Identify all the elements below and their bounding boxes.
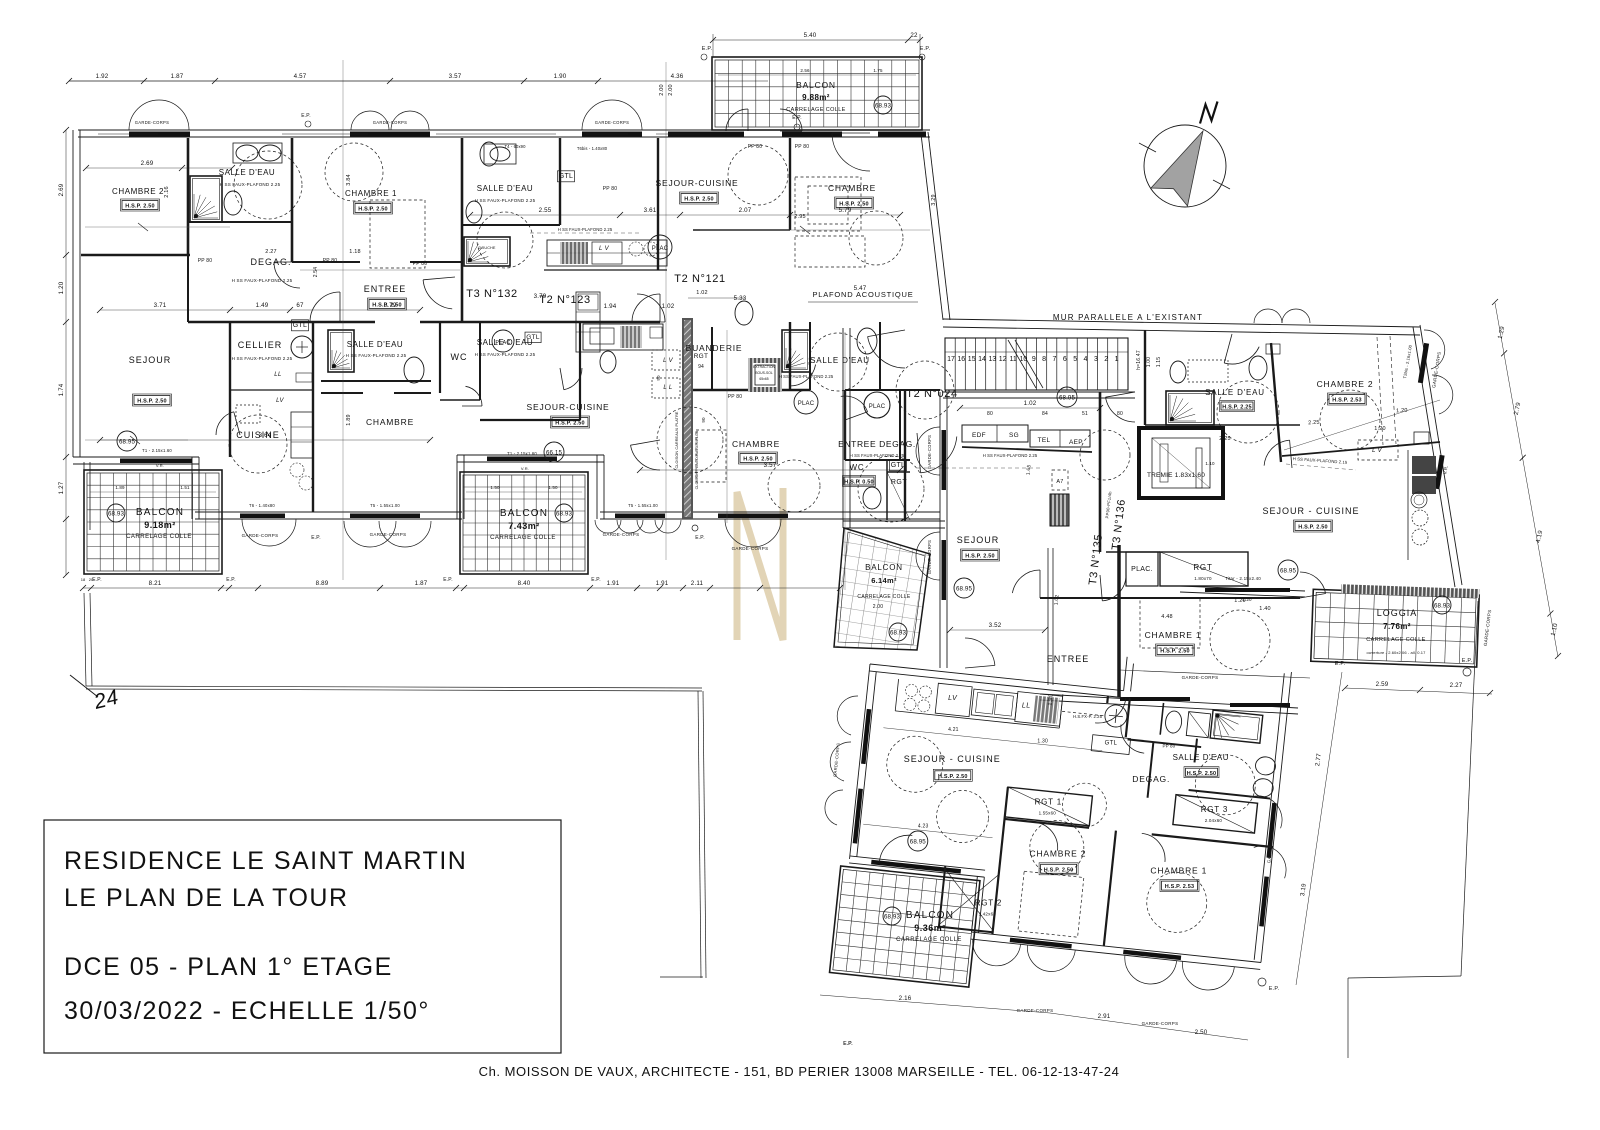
svg-text:2.00: 2.00	[659, 84, 665, 96]
svg-text:H.S.P. 2.50: H.S.P. 2.50	[137, 399, 167, 405]
svg-text:BALCON: BALCON	[906, 910, 954, 921]
svg-text:90: 90	[656, 375, 661, 381]
svg-text:7.43m²: 7.43m²	[508, 521, 540, 531]
svg-text:H.S.P. 2.50: H.S.P. 2.50	[1187, 771, 1217, 777]
svg-text:2.56: 2.56	[800, 68, 810, 73]
svg-text:H SS FAUX-PLAFOND 2.25: H SS FAUX-PLAFOND 2.25	[850, 453, 905, 458]
svg-text:22: 22	[910, 32, 918, 39]
svg-text:CARRELAGE COLLE: CARRELAGE COLLE	[857, 594, 910, 600]
svg-text:13: 13	[989, 356, 997, 363]
svg-text:SG: SG	[1009, 432, 1019, 439]
svg-text:PLAC: PLAC	[869, 404, 886, 410]
svg-text:DOUCHE: DOUCHE	[478, 246, 495, 250]
svg-text:MUR PARALLELE A L'EXISTANT: MUR PARALLELE A L'EXISTANT	[1053, 313, 1203, 322]
svg-text:T6 - 1.40x80: T6 - 1.40x80	[249, 503, 275, 508]
svg-text:6: 6	[1063, 356, 1067, 363]
svg-text:2.16: 2.16	[899, 995, 912, 1002]
svg-text:2.91: 2.91	[1098, 1013, 1111, 1020]
svg-text:2.59: 2.59	[1376, 681, 1389, 688]
svg-text:H.S.P. 2.25: H.S.P. 2.25	[1222, 405, 1252, 411]
svg-text:E.P.: E.P.	[702, 46, 713, 52]
svg-text:EDF: EDF	[972, 432, 986, 439]
svg-text:DCE 05 - PLAN 1° ETAGE: DCE 05 - PLAN 1° ETAGE	[64, 953, 393, 981]
svg-text:5.40: 5.40	[804, 32, 817, 39]
svg-text:H.S.P. 2.50: H.S.P. 2.50	[1044, 867, 1074, 873]
svg-text:SALLE D'EAU: SALLE D'EAU	[347, 340, 403, 349]
svg-text:3.84: 3.84	[346, 174, 352, 186]
svg-text:T2 N°121: T2 N°121	[674, 273, 725, 285]
svg-text:51: 51	[1082, 411, 1088, 417]
svg-text:1.89: 1.89	[346, 414, 352, 426]
svg-text:H.S.P. 2.50: H.S.P. 2.50	[1160, 649, 1190, 655]
svg-text:11: 11	[1009, 356, 1016, 363]
svg-text:1.87: 1.87	[415, 580, 428, 587]
svg-text:2.95: 2.95	[794, 214, 806, 220]
svg-text:1.30: 1.30	[1037, 739, 1048, 745]
svg-text:V.R.: V.R.	[521, 466, 529, 471]
svg-text:BALCON: BALCON	[136, 507, 184, 518]
svg-text:H.S.P. 2.53: H.S.P. 2.53	[1332, 398, 1362, 404]
svg-text:5.79: 5.79	[839, 207, 852, 214]
svg-text:AEP: AEP	[1069, 439, 1083, 446]
svg-text:1.20: 1.20	[58, 281, 65, 294]
svg-text:CHAMBRE 1: CHAMBRE 1	[1150, 865, 1207, 875]
svg-text:80: 80	[1117, 411, 1123, 417]
svg-text:6.14m²: 6.14m²	[871, 576, 897, 585]
svg-text:68.93: 68.93	[875, 102, 891, 109]
svg-text:90: 90	[701, 417, 706, 423]
svg-text:A7: A7	[1056, 479, 1063, 485]
svg-text:2.16: 2.16	[164, 186, 170, 198]
svg-text:30/03/2022 - ECHELLE 1/50°: 30/03/2022 - ECHELLE 1/50°	[64, 997, 430, 1025]
svg-text:CARRELAGE COLLE: CARRELAGE COLLE	[896, 937, 962, 943]
svg-text:2.27: 2.27	[1450, 682, 1463, 689]
svg-text:GARDE-CORPS: GARDE-CORPS	[927, 435, 932, 469]
svg-text:GTL: GTL	[891, 462, 906, 469]
svg-text:EXTRACTION: EXTRACTION	[753, 365, 775, 369]
svg-text:1.02: 1.02	[696, 290, 708, 296]
svg-text:WC: WC	[850, 463, 865, 472]
svg-text:66.15: 66.15	[546, 449, 562, 456]
svg-text:5: 5	[1073, 356, 1077, 363]
svg-text:GARDE-CORPS: GARDE-CORPS	[373, 120, 407, 125]
svg-text:h=16.47: h=16.47	[1136, 350, 1142, 370]
svg-text:Ch. MOISSON DE VAUX, ARCHITECT: Ch. MOISSON DE VAUX, ARCHITECTE - 151, B…	[479, 1064, 1120, 1079]
svg-text:SALLE D'EAU: SALLE D'EAU	[477, 338, 533, 347]
svg-text:ENTREE: ENTREE	[1047, 654, 1090, 664]
svg-text:H SS FAUX-PLAFOND 2.25: H SS FAUX-PLAFOND 2.25	[779, 374, 834, 379]
svg-text:4.23: 4.23	[918, 824, 929, 830]
svg-text:3.79: 3.79	[534, 293, 547, 300]
svg-text:E.P.: E.P.	[301, 113, 311, 119]
svg-text:CELLIER: CELLIER	[238, 340, 283, 350]
svg-text:1.91: 1.91	[656, 580, 669, 587]
svg-text:H SS FAUX-PLAFOND 2.25: H SS FAUX-PLAFOND 2.25	[558, 227, 613, 232]
svg-text:PP 80: PP 80	[795, 144, 810, 150]
svg-text:SEJOUR-CUISINE: SEJOUR-CUISINE	[656, 178, 739, 188]
svg-text:2: 2	[1104, 356, 1108, 363]
svg-text:1.51: 1.51	[180, 485, 190, 490]
svg-text:SEJOUR-CUISINE: SEJOUR-CUISINE	[527, 402, 610, 412]
svg-text:3.57: 3.57	[449, 73, 462, 80]
svg-text:67: 67	[296, 302, 304, 309]
svg-text:GTL: GTL	[1105, 741, 1118, 747]
svg-text:3.71: 3.71	[154, 302, 167, 309]
svg-text:1.15: 1.15	[1156, 357, 1162, 368]
svg-text:L L: L L	[663, 385, 672, 391]
svg-text:GARDE-CORPS: GARDE-CORPS	[732, 546, 769, 551]
svg-text:ENTREE: ENTREE	[364, 284, 407, 294]
svg-text:9.88m²: 9.88m²	[802, 93, 830, 102]
svg-text:18: 18	[81, 577, 86, 582]
svg-text:PLAC: PLAC	[798, 401, 815, 407]
svg-text:2.27: 2.27	[265, 249, 277, 255]
svg-text:PP 80: PP 80	[198, 258, 213, 264]
svg-text:E.P.: E.P.	[1269, 986, 1280, 992]
svg-text:20: 20	[89, 577, 94, 582]
svg-text:1.50: 1.50	[548, 485, 558, 490]
svg-text:RGT 3: RGT 3	[1201, 805, 1228, 814]
svg-text:T1 - 2.15x1.60: T1 - 2.15x1.60	[142, 448, 172, 453]
svg-text:2.69: 2.69	[58, 183, 65, 196]
svg-text:RESIDENCE LE SAINT MARTIN: RESIDENCE LE SAINT MARTIN	[64, 847, 467, 875]
svg-text:L V: L V	[1372, 448, 1382, 454]
svg-text:1.10: 1.10	[1205, 461, 1215, 466]
svg-text:ouverture - 2.60x2.06 - al: ouverture - 2.60x2.06 - all. 0.17	[1367, 650, 1427, 655]
svg-text:GARDE-CORPS: GARDE-CORPS	[603, 532, 640, 537]
svg-text:BALCON: BALCON	[500, 508, 548, 519]
svg-text:68.95: 68.95	[956, 585, 972, 592]
svg-text:H.S.P. 2.50: H.S.P. 2.50	[965, 554, 995, 560]
svg-text:2.55: 2.55	[539, 207, 552, 214]
svg-text:H.S.P. 2.50: H.S.P. 2.50	[555, 421, 585, 427]
svg-text:GARDE-CORPS: GARDE-CORPS	[1017, 1008, 1054, 1013]
svg-text:E.P.: E.P.	[695, 535, 705, 541]
svg-text:1.18: 1.18	[349, 249, 361, 255]
svg-text:RGT 2: RGT 2	[975, 899, 1002, 908]
svg-text:1.90: 1.90	[1047, 694, 1054, 706]
svg-text:CHAMBRE 2: CHAMBRE 2	[112, 187, 164, 196]
svg-text:3.64: 3.64	[259, 432, 272, 439]
svg-text:Titar - 2.15x2.40: Titar - 2.15x2.40	[1225, 576, 1261, 581]
svg-text:80: 80	[987, 411, 993, 417]
svg-text:1.91: 1.91	[607, 580, 620, 587]
svg-text:PP 80: PP 80	[323, 258, 338, 264]
svg-text:H SS FAUX-PLAFOND 2.25: H SS FAUX-PLAFOND 2.25	[346, 353, 407, 358]
svg-text:T6bis - 1.40x80: T6bis - 1.40x80	[577, 146, 608, 151]
svg-text:CHAMBRE 1: CHAMBRE 1	[1145, 630, 1202, 640]
svg-text:E.P.: E.P.	[792, 115, 802, 121]
svg-text:68.95: 68.95	[119, 438, 135, 445]
svg-text:CLOISON PLACO-BA13-S/ELCA: CLOISON PLACO-BA13-S/ELCA	[695, 430, 699, 489]
svg-text:SALLE D'EAU: SALLE D'EAU	[1173, 753, 1229, 762]
svg-text:CHAMBRE: CHAMBRE	[828, 183, 876, 193]
svg-text:LOGGIA: LOGGIA	[1377, 608, 1418, 618]
svg-text:3.79: 3.79	[384, 302, 397, 309]
svg-text:4.21: 4.21	[948, 727, 959, 733]
svg-text:68.93: 68.93	[884, 913, 900, 920]
svg-text:H.S.P. 2.50: H.S.P. 2.50	[938, 774, 968, 780]
svg-text:GTL: GTL	[559, 173, 574, 180]
svg-text:E.P.: E.P.	[920, 46, 931, 52]
svg-text:GARDE-CORPS: GARDE-CORPS	[1182, 675, 1219, 680]
svg-text:PP 80: PP 80	[728, 394, 743, 400]
svg-text:1: 1	[1115, 356, 1119, 363]
svg-text:E.P.: E.P.	[591, 577, 601, 583]
svg-text:H SS FAUX-PLAFOND 2.25: H SS FAUX-PLAFOND 2.25	[475, 198, 536, 203]
svg-text:T1 - 2.15x1.60: T1 - 2.15x1.60	[507, 451, 537, 456]
svg-text:LE PLAN DE LA TOUR: LE PLAN DE LA TOUR	[64, 884, 349, 912]
svg-text:2.07: 2.07	[739, 207, 752, 214]
svg-text:68.93: 68.93	[108, 510, 124, 517]
svg-text:GARDE-CORPS: GARDE-CORPS	[370, 532, 407, 537]
svg-text:9.18m²: 9.18m²	[144, 520, 176, 530]
svg-text:3.29: 3.29	[931, 194, 937, 206]
svg-text:7.76m²: 7.76m²	[1383, 622, 1411, 631]
svg-text:1.74: 1.74	[58, 383, 65, 396]
svg-text:V.R.: V.R.	[156, 463, 164, 468]
svg-text:E.P.: E.P.	[92, 577, 102, 583]
svg-text:3.52: 3.52	[989, 622, 1002, 629]
svg-text:3.61: 3.61	[644, 207, 657, 214]
svg-text:T5 - 1.55x1.00: T5 - 1.55x1.00	[628, 503, 658, 508]
svg-text:E.P.: E.P.	[843, 1041, 853, 1047]
svg-text:65x65: 65x65	[759, 377, 768, 381]
svg-text:1.80x70: 1.80x70	[1194, 576, 1212, 581]
svg-text:1.89: 1.89	[115, 485, 125, 490]
svg-text:RGT: RGT	[1193, 563, 1212, 572]
svg-text:1.50: 1.50	[490, 485, 500, 490]
svg-text:1.20: 1.20	[1242, 597, 1252, 602]
svg-text:SALLE D'EAU: SALLE D'EAU	[219, 168, 275, 177]
svg-text:SALLE D'EAU: SALLE D'EAU	[477, 184, 533, 193]
svg-text:T4 - 60x90: T4 - 60x90	[504, 144, 526, 149]
svg-text:H SS FAUX-PLAFOND 2.25: H SS FAUX-PLAFOND 2.25	[475, 352, 536, 357]
svg-text:4.57: 4.57	[294, 73, 307, 80]
svg-text:DEGAG.: DEGAG.	[1132, 774, 1170, 784]
svg-text:TEL: TEL	[1038, 437, 1051, 444]
svg-text:8.89: 8.89	[316, 580, 329, 587]
svg-text:GARDE-CORPS: GARDE-CORPS	[927, 540, 932, 574]
svg-text:8: 8	[1042, 356, 1046, 363]
svg-text:LL: LL	[1022, 703, 1031, 710]
svg-text:PP 80: PP 80	[603, 186, 618, 192]
svg-text:1.92: 1.92	[96, 73, 109, 80]
svg-text:15: 15	[968, 356, 976, 363]
svg-text:RGT: RGT	[694, 353, 709, 360]
svg-text:L V: L V	[599, 246, 610, 252]
svg-text:8.21: 8.21	[149, 580, 162, 587]
svg-text:2.00: 2.00	[668, 84, 674, 96]
svg-text:H SS FAUX-PLAFOND 2.25: H SS FAUX-PLAFOND 2.25	[220, 182, 281, 187]
svg-text:LL: LL	[274, 372, 281, 378]
svg-text:1.40: 1.40	[1259, 606, 1271, 612]
svg-text:9: 9	[1032, 356, 1036, 363]
svg-text:1.02: 1.02	[1053, 594, 1060, 605]
svg-text:2.04x60: 2.04x60	[1205, 818, 1223, 823]
svg-text:CARRELAGE COLLE: CARRELAGE COLLE	[786, 107, 846, 113]
svg-text:2.25: 2.25	[1308, 420, 1320, 427]
svg-text:1.20: 1.20	[1374, 426, 1386, 432]
svg-text:GARDE-CORPS: GARDE-CORPS	[242, 533, 279, 538]
svg-text:H.S.P. 2.50: H.S.P. 2.50	[684, 197, 714, 203]
svg-text:1.27: 1.27	[58, 481, 65, 494]
svg-text:14: 14	[978, 356, 986, 363]
svg-text:SEJOUR - CUISINE: SEJOUR - CUISINE	[1262, 506, 1359, 516]
svg-text:1.55x60: 1.55x60	[1039, 810, 1057, 815]
svg-text:WC: WC	[451, 352, 468, 362]
svg-text:4.36: 4.36	[671, 73, 684, 80]
svg-text:84: 84	[1042, 411, 1048, 417]
svg-text:H.S.P. 2.50: H.S.P. 2.50	[125, 204, 155, 210]
svg-text:LV: LV	[276, 398, 284, 404]
svg-text:E.P.: E.P.	[226, 577, 236, 583]
svg-text:PP 80: PP 80	[1163, 744, 1176, 749]
svg-text:1.65: 1.65	[1025, 464, 1032, 475]
svg-text:CHAMBRE 1: CHAMBRE 1	[345, 189, 397, 198]
svg-text:2.11: 2.11	[691, 580, 704, 587]
svg-text:CHAMBRE 2: CHAMBRE 2	[1317, 379, 1374, 389]
svg-text:3: 3	[1094, 356, 1098, 363]
svg-text:17: 17	[947, 356, 955, 363]
svg-text:BUANDERIE: BUANDERIE	[686, 343, 743, 353]
svg-text:T5 - 1.55x1.00: T5 - 1.55x1.00	[370, 503, 400, 508]
svg-text:1.75: 1.75	[873, 68, 883, 73]
svg-text:BALCON: BALCON	[796, 80, 836, 90]
svg-text:T2 N°123: T2 N°123	[539, 294, 590, 306]
svg-text:2.50: 2.50	[1195, 1029, 1208, 1036]
svg-text:4: 4	[1084, 356, 1088, 363]
svg-text:94: 94	[698, 364, 704, 370]
svg-text:2.69: 2.69	[141, 160, 154, 167]
svg-text:8.40: 8.40	[518, 580, 531, 587]
svg-text:H.S.P. 2.50: H.S.P. 2.50	[1298, 525, 1328, 531]
svg-text:1.42x60: 1.42x60	[979, 912, 997, 917]
svg-text:GARDE-CORPS: GARDE-CORPS	[595, 120, 629, 125]
svg-text:E.P.: E.P.	[443, 577, 453, 583]
svg-text:CHAMBRE: CHAMBRE	[732, 439, 780, 449]
svg-text:E.P.: E.P.	[1462, 658, 1473, 664]
svg-text:H.S.P. 2.53: H.S.P. 2.53	[1165, 884, 1195, 890]
svg-text:1.90: 1.90	[554, 73, 567, 80]
svg-text:H.S.P. 2.50: H.S.P. 2.50	[358, 207, 388, 213]
svg-text:68.93: 68.93	[1434, 602, 1450, 609]
svg-text:GARDE-CORPS: GARDE-CORPS	[135, 120, 169, 125]
svg-text:16: 16	[957, 356, 965, 363]
svg-text:1.94: 1.94	[604, 303, 617, 310]
svg-text:SOUS-SOL: SOUS-SOL	[755, 371, 773, 375]
svg-text:68.93: 68.93	[556, 510, 572, 517]
svg-text:68.93: 68.93	[890, 629, 906, 636]
svg-text:H SS FAUX-PLAFOND 2.25: H SS FAUX-PLAFOND 2.25	[983, 453, 1038, 458]
svg-text:2.54: 2.54	[313, 267, 319, 278]
svg-text:1.02: 1.02	[662, 303, 675, 310]
svg-text:RGT 1: RGT 1	[1035, 797, 1062, 806]
svg-text:TREMIE 1.83x1.60: TREMIE 1.83x1.60	[1147, 472, 1205, 479]
svg-text:68.95: 68.95	[1280, 567, 1296, 574]
svg-text:CHAMBRE 2: CHAMBRE 2	[1030, 849, 1087, 859]
svg-text:E.P.: E.P.	[1335, 661, 1346, 667]
svg-text:1.87: 1.87	[171, 73, 184, 80]
svg-text:3.57: 3.57	[764, 462, 777, 469]
svg-text:LV: LV	[948, 695, 958, 702]
svg-text:L V: L V	[663, 358, 673, 364]
svg-text:68.95: 68.95	[910, 838, 926, 845]
svg-text:E.P.: E.P.	[311, 535, 321, 541]
svg-text:SALLE D'EAU: SALLE D'EAU	[810, 356, 870, 365]
svg-text:H SS FAUX-PLAFOND 2.25: H SS FAUX-PLAFOND 2.25	[232, 356, 293, 361]
svg-text:CARRELAGE COLLE: CARRELAGE COLLE	[126, 534, 192, 540]
svg-text:SEJOUR - CUISINE: SEJOUR - CUISINE	[904, 754, 1001, 764]
svg-text:1.00: 1.00	[1146, 357, 1152, 368]
svg-text:SEJOUR: SEJOUR	[957, 535, 1000, 545]
svg-text:7: 7	[1053, 356, 1057, 363]
svg-text:SEJOUR: SEJOUR	[129, 355, 172, 365]
svg-text:1.49: 1.49	[256, 302, 269, 309]
svg-text:CHAMBRE: CHAMBRE	[366, 417, 414, 427]
svg-text:H.S.FX-P. 2.25: H.S.FX-P. 2.25	[1073, 714, 1103, 719]
svg-text:4.48: 4.48	[1161, 614, 1173, 620]
svg-text:SALLE D'EAU: SALLE D'EAU	[1205, 388, 1265, 397]
svg-text:CLOISON CARREAUX PLATRE: CLOISON CARREAUX PLATRE	[675, 411, 679, 468]
svg-text:CARRELAGE COLLE: CARRELAGE COLLE	[490, 535, 556, 541]
svg-text:GTL: GTL	[293, 322, 308, 329]
svg-text:12: 12	[999, 356, 1007, 363]
svg-text:GARDE-CORPS: GARDE-CORPS	[1142, 1021, 1179, 1026]
svg-text:2.00: 2.00	[873, 604, 884, 610]
svg-text:PLAC.: PLAC.	[1131, 566, 1153, 573]
svg-text:T3 N°132: T3 N°132	[466, 288, 517, 300]
svg-text:BALCON: BALCON	[865, 563, 903, 572]
svg-text:9.36m²: 9.36m²	[914, 923, 946, 933]
svg-text:2.25: 2.25	[1219, 436, 1231, 442]
svg-text:5.47: 5.47	[854, 285, 867, 292]
svg-text:CARRELAGE COLLE: CARRELAGE COLLE	[1366, 637, 1426, 643]
svg-text:1.02: 1.02	[1024, 400, 1037, 407]
svg-text:5.33: 5.33	[734, 295, 747, 302]
